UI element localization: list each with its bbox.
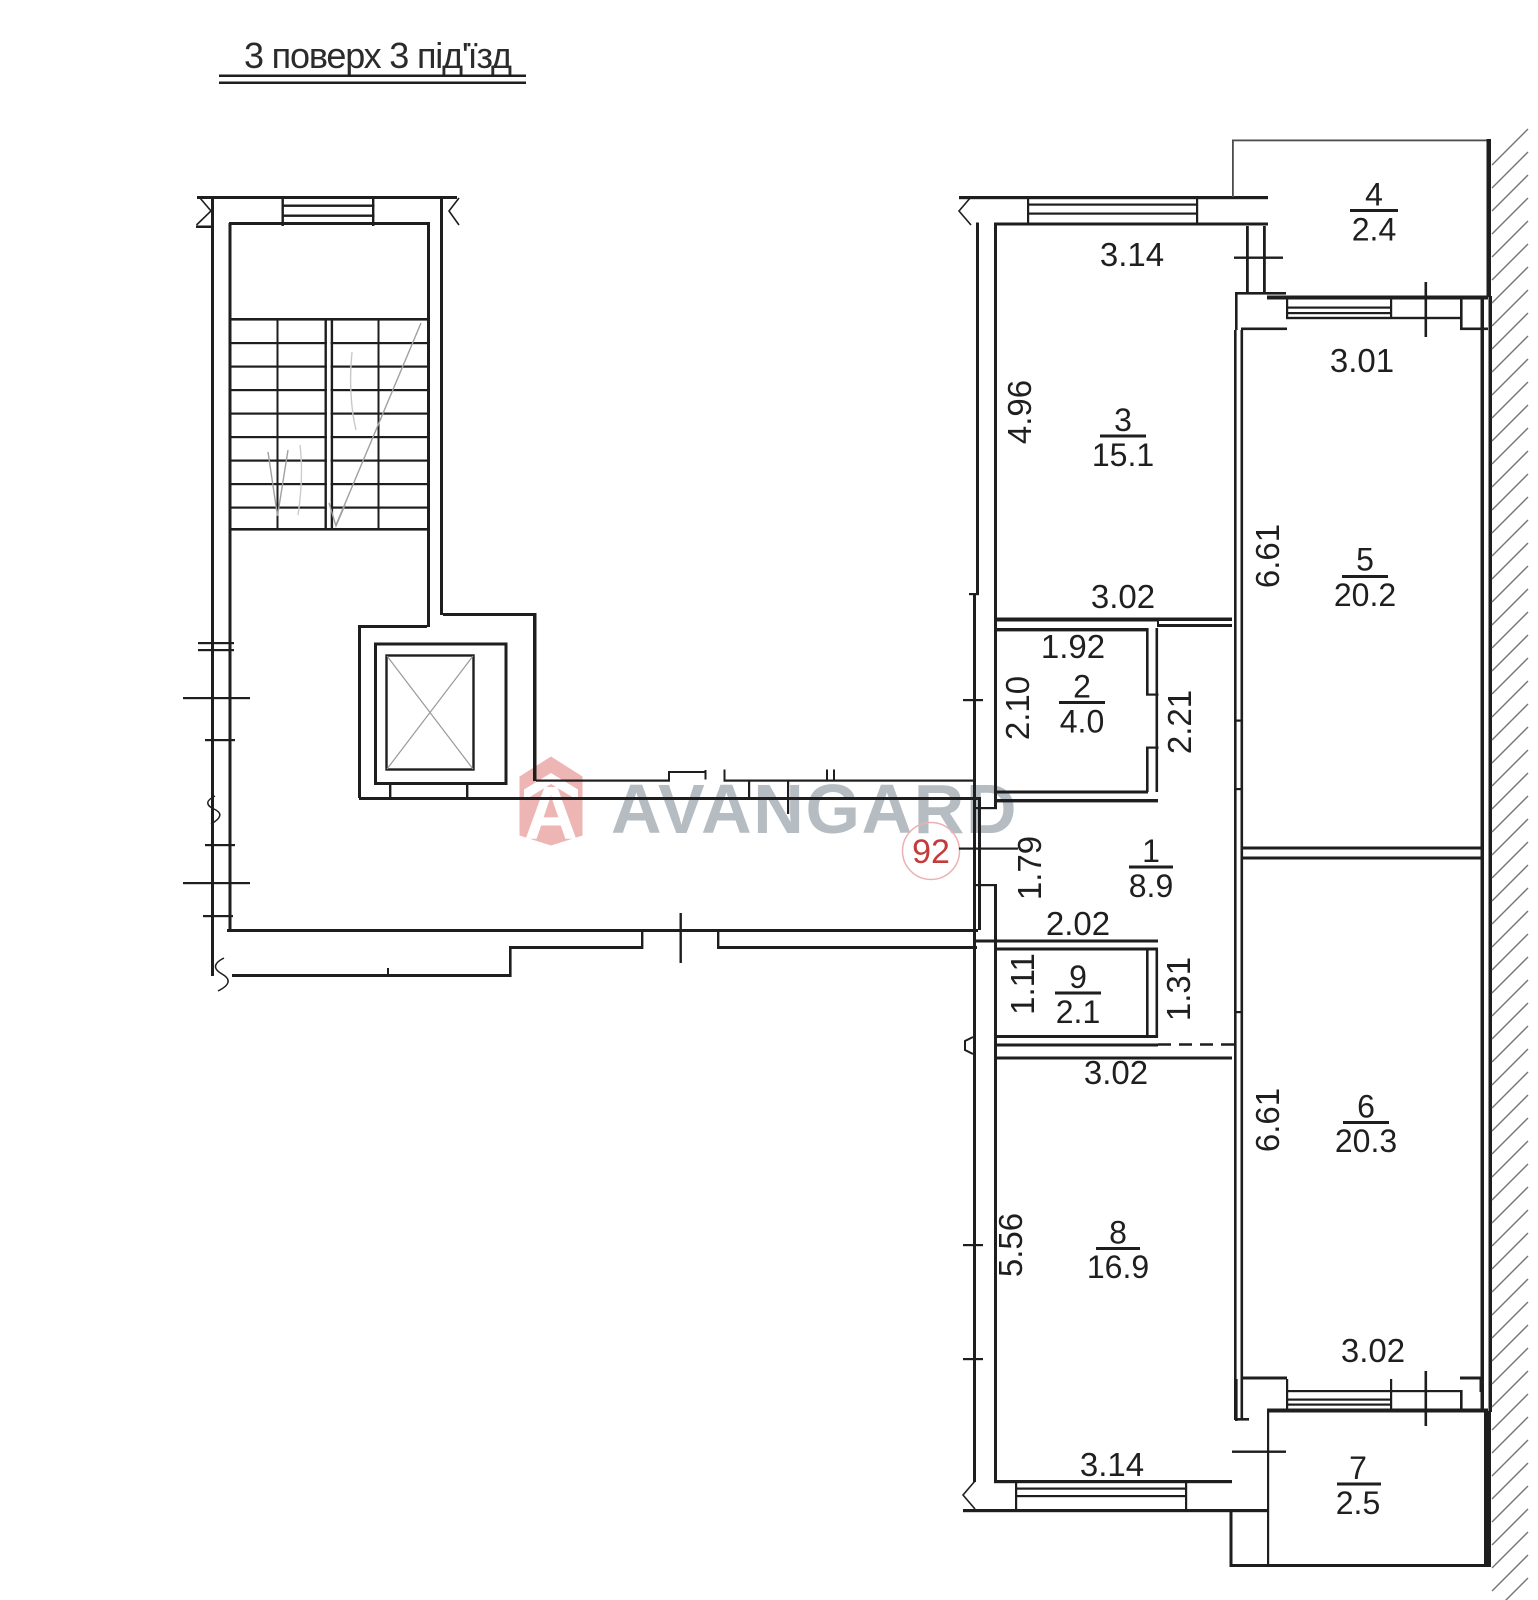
svg-text:4: 4 [1365, 177, 1383, 213]
svg-text:5.56: 5.56 [992, 1213, 1029, 1277]
svg-text:1.79: 1.79 [1011, 836, 1048, 900]
svg-text:3.14: 3.14 [1100, 236, 1164, 273]
svg-text:5: 5 [1356, 542, 1374, 578]
svg-text:6: 6 [1357, 1089, 1375, 1125]
svg-text:2.4: 2.4 [1352, 212, 1396, 248]
svg-text:7: 7 [1349, 1450, 1367, 1486]
svg-text:1.11: 1.11 [1004, 953, 1041, 1015]
svg-text:2.1: 2.1 [1056, 994, 1100, 1030]
svg-text:3.02: 3.02 [1341, 1332, 1405, 1369]
svg-text:3.02: 3.02 [1091, 578, 1155, 615]
svg-text:3 поверх 3 під'їзд: 3 поверх 3 під'їзд [244, 35, 512, 76]
svg-text:1.31: 1.31 [1160, 957, 1197, 1021]
svg-text:2.21: 2.21 [1161, 690, 1198, 754]
svg-text:3: 3 [1114, 402, 1132, 438]
svg-text:8: 8 [1109, 1215, 1127, 1251]
svg-text:3.02: 3.02 [1084, 1054, 1148, 1091]
svg-text:16.9: 16.9 [1087, 1249, 1149, 1285]
svg-text:8.9: 8.9 [1129, 868, 1173, 904]
svg-text:2.10: 2.10 [999, 676, 1036, 740]
svg-text:4.96: 4.96 [1001, 380, 1038, 444]
svg-text:A: A [524, 771, 578, 855]
svg-text:4.0: 4.0 [1060, 704, 1104, 740]
svg-text:15.1: 15.1 [1092, 437, 1154, 473]
svg-text:3.14: 3.14 [1080, 1446, 1144, 1483]
svg-text:2.02: 2.02 [1046, 905, 1110, 942]
svg-text:20.3: 20.3 [1335, 1123, 1397, 1159]
svg-text:1.92: 1.92 [1041, 628, 1105, 665]
svg-text:9: 9 [1069, 959, 1087, 995]
svg-text:3.01: 3.01 [1330, 342, 1394, 379]
svg-text:20.2: 20.2 [1334, 577, 1396, 613]
svg-text:6.61: 6.61 [1249, 524, 1286, 588]
svg-text:6.61: 6.61 [1249, 1088, 1286, 1152]
svg-text:1: 1 [1142, 833, 1160, 869]
svg-text:2.5: 2.5 [1336, 1485, 1380, 1521]
svg-text:2: 2 [1073, 669, 1091, 705]
svg-text:92: 92 [912, 833, 950, 871]
